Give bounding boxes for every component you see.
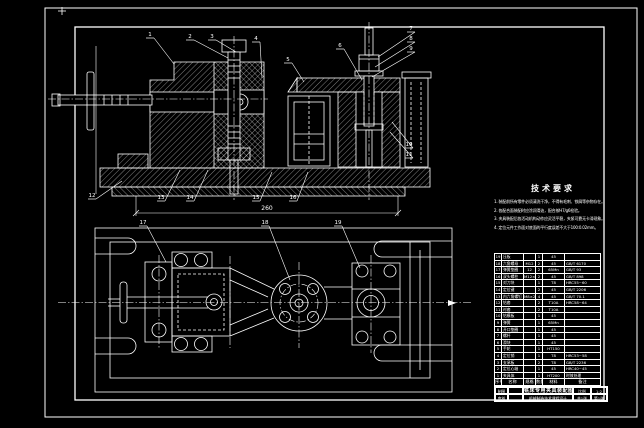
sheet-count: 共1张 (573, 394, 591, 401)
table-cell: 手轮 (502, 346, 524, 353)
table-cell: 1 (536, 326, 543, 333)
table-cell: T8 (543, 280, 565, 287)
slide-body (172, 268, 230, 336)
technical-requirements: 技术要求 1. 装配前所有零件必须清洗干净，不得有毛刺、铁屑等杂物存在。2. 各… (494, 183, 612, 232)
checked-label: 审核 (495, 394, 508, 401)
table-cell: 支承板 (502, 359, 524, 366)
balloon-number: 2 (188, 34, 192, 40)
table-cell: 45 (543, 293, 565, 300)
cad-drawing-canvas: 260 (0, 0, 644, 428)
table-cell: 8 (495, 326, 502, 333)
balloon-number: 11 (406, 152, 413, 158)
table-header-cell: 材料 (543, 379, 565, 386)
balloon-number: 1 (148, 32, 152, 38)
parts-table-grid: 19压板14518六角螺母M12245GB/T 617017弹簧垫圈12265M… (494, 253, 601, 386)
table-cell: 12 (495, 300, 502, 307)
table-cell: HT200 (543, 372, 565, 379)
balloon-number: 4 (254, 36, 258, 42)
base-plate-upper (100, 168, 430, 187)
table-cell: 2 (536, 260, 543, 267)
table-cell: HRC53~58 (565, 352, 601, 359)
table-header-cell: 数量 (536, 379, 543, 386)
table-cell: 6 (495, 339, 502, 346)
table-cell: GB/T 70.1 (565, 293, 601, 300)
table-cell: T10A (543, 300, 565, 307)
table-cell (524, 346, 536, 353)
top-plate (297, 78, 400, 92)
table-cell: M12 (524, 260, 536, 267)
table-cell: 15 (495, 280, 502, 287)
table-cell: 定位心轴 (502, 366, 524, 373)
table-cell: 45 (543, 313, 565, 320)
table-cell: 1 (536, 313, 543, 320)
table-row: 9弹簧165Mn (495, 319, 601, 326)
table-cell (565, 306, 601, 313)
table-cell: 1 (536, 333, 543, 340)
table-cell: HRC58~64 (565, 300, 601, 307)
table-row: 14定位键245GB/T 2206 (495, 286, 601, 293)
table-cell (565, 346, 601, 353)
table-cell (524, 280, 536, 287)
table-cell: 2 (536, 286, 543, 293)
table-cell: 14 (495, 286, 502, 293)
balloon-number: 14 (187, 195, 194, 201)
table-row: 1夹具体1HT200时效处理 (495, 372, 601, 379)
table-row: 11衬套2T10A (495, 306, 601, 313)
table-cell: 45 (543, 273, 565, 280)
table-row: 19压板145 (495, 254, 601, 261)
balloon-number: 17 (140, 220, 147, 226)
table-cell (565, 339, 601, 346)
balloon-number: 6 (338, 43, 342, 49)
table-cell: 1 (536, 319, 543, 326)
block-bolt-hole (384, 331, 396, 343)
technical-requirement-item: 2. 各配合面装配时应涂润滑油，配合按H7/g6检验。 (494, 207, 612, 216)
technical-requirements-list: 1. 装配前所有零件必须清洗干净，不得有毛刺、铁屑等杂物存在。2. 各配合面装配… (494, 198, 612, 232)
table-cell: 18 (495, 260, 502, 267)
block-bolt-hole (356, 331, 368, 343)
table-cell: 17 (495, 267, 502, 274)
table-cell (524, 319, 536, 326)
table-cell: 45 (543, 254, 565, 261)
table-cell: 对刀块 (502, 280, 524, 287)
flange-bolt-hole (308, 312, 319, 323)
technical-requirements-title: 技术要求 (494, 183, 612, 194)
parts-table: 19压板14518六角螺母M12245GB/T 617017弹簧垫圈12265M… (494, 253, 601, 386)
table-row: 6滑块145 (495, 339, 601, 346)
table-cell: 压板 (502, 254, 524, 261)
table-cell: GB/T 6170 (565, 260, 601, 267)
table-cell: 16 (495, 273, 502, 280)
mount-slot (95, 338, 136, 354)
table-row: 3支承板2T8GB/T 2236 (495, 359, 601, 366)
balloon-callout: 1 (146, 32, 174, 64)
flange-bolt-hole (308, 284, 319, 295)
table-cell: 65Mn (543, 267, 565, 274)
plan-view (95, 228, 456, 392)
table-cell: 2 (536, 300, 543, 307)
block-bolt-hole (356, 265, 368, 277)
table-row: 17弹簧垫圈12265MnGB/T 93 (495, 267, 601, 274)
drafter-name-cell (508, 387, 523, 394)
table-row: 13内六角螺钉M8×20445GB/T 70.1 (495, 293, 601, 300)
balloon-callout: 18 (261, 220, 290, 280)
table-cell: 开口垫圈 (502, 326, 524, 333)
table-cell: 1 (536, 372, 543, 379)
table-cell: 10 (495, 313, 502, 320)
flange-bolt-hole (280, 312, 291, 323)
table-outline (95, 228, 452, 392)
table-cell: 45 (543, 366, 565, 373)
table-header-cell: 序号 (495, 379, 502, 386)
technical-requirement-item: 1. 装配前所有零件必须清洗干净，不得有毛刺、铁屑等杂物存在。 (494, 198, 612, 207)
table-cell: 螺杆 (502, 333, 524, 340)
table-cell: 3 (495, 359, 502, 366)
table-cell: 夹具体 (502, 372, 524, 379)
balloon-callout: 19 (334, 220, 360, 268)
balloon-number: 13 (158, 195, 165, 201)
table-cell (565, 254, 601, 261)
table-cell: GB/T 2236 (565, 359, 601, 366)
drawn-label: 制图 (495, 387, 508, 394)
table-cell: 5 (495, 346, 502, 353)
table-cell: 1 (536, 366, 543, 373)
table-cell: 弹簧垫圈 (502, 267, 524, 274)
scale-label: 比例 (573, 387, 591, 394)
table-row: 4定位销1T8HRC53~58 (495, 352, 601, 359)
lead-screw (58, 95, 152, 105)
table-header-cell: 名称 (502, 379, 524, 386)
table-cell: 2 (536, 359, 543, 366)
table-cell: 1 (536, 254, 543, 261)
table-cell (524, 333, 536, 340)
table-cell: 12 (524, 267, 536, 274)
table-cell: 钻套 (502, 300, 524, 307)
table-row: 8开口垫圈145 (495, 326, 601, 333)
table-cell: 1 (536, 346, 543, 353)
table-cell (524, 372, 536, 379)
balloon-number: 8 (409, 36, 413, 42)
table-cell: 2 (536, 267, 543, 274)
table-row: 16双头螺柱M12×60245GB/T 898 (495, 273, 601, 280)
table-cell: 弹簧 (502, 319, 524, 326)
table-cell: 衬套 (502, 306, 524, 313)
table-cell: 45 (543, 286, 565, 293)
table-cell: T10A (543, 306, 565, 313)
table-cell: 9 (495, 319, 502, 326)
table-row: 5手轮1HT150 (495, 346, 601, 353)
balloon-number: 19 (335, 220, 342, 226)
ball-joint (206, 294, 222, 310)
table-cell: 1 (536, 352, 543, 359)
table-cell: HRC40~45 (565, 366, 601, 373)
mount-slot (374, 241, 452, 257)
technical-requirement-item: 4. 定位元件工作面对底面的平行度误差不大于100:0.02mm。 (494, 224, 612, 233)
bearing-block (352, 263, 400, 345)
table-cell: T8 (543, 352, 565, 359)
table-cell: HT150 (543, 346, 565, 353)
balloon-number: 16 (290, 195, 297, 201)
balloon-number: 9 (409, 46, 413, 52)
balloon-number: 12 (89, 193, 96, 199)
table-cell: 11 (495, 306, 502, 313)
table-cell: 65Mn (543, 319, 565, 326)
table-row: 10钻模板145 (495, 313, 601, 320)
table-cell: 2 (495, 366, 502, 373)
balloon-number: 3 (210, 34, 214, 40)
front-dimension: 260 (133, 196, 401, 216)
table-cell (524, 366, 536, 373)
table-cell (524, 352, 536, 359)
table-header-cell: 规格 (524, 379, 536, 386)
guide-column (145, 262, 172, 342)
table-cell: 滑块 (502, 339, 524, 346)
balloon-number: 15 (253, 195, 260, 201)
table-row: 2定位心轴145HRC40~45 (495, 366, 601, 373)
table-cell: 时效处理 (565, 372, 601, 379)
table-cell: HRC55~60 (565, 280, 601, 287)
technical-requirement-item: 3. 夹具装配后各活动机构动作应灵活平稳，夹紧可靠无卡滞现象。 (494, 215, 612, 224)
balloon-callout: 6 (336, 43, 362, 80)
balloon-number: 10 (406, 142, 413, 148)
table-cell: M12×60 (524, 273, 536, 280)
table-cell (565, 333, 601, 340)
table-cell: GB/T 2206 (565, 286, 601, 293)
page-number: 第1张 (591, 394, 607, 401)
table-cell (524, 300, 536, 307)
table-cell (524, 339, 536, 346)
mount-slot (374, 345, 452, 361)
balloon-callout: 17 (139, 220, 166, 262)
table-cell: 六角螺母 (502, 260, 524, 267)
table-cell: 定位销 (502, 352, 524, 359)
balloon-number: 5 (286, 57, 290, 63)
table-row: 7螺杆145 (495, 333, 601, 340)
table-cell: 钻模板 (502, 313, 524, 320)
table-cell: 4 (536, 293, 543, 300)
table-cell (524, 313, 536, 320)
table-cell: 13 (495, 293, 502, 300)
table-cell (524, 286, 536, 293)
table-cell: 7 (495, 333, 502, 340)
scale-value: 1:2 (591, 387, 607, 394)
dimension-text: 260 (261, 205, 273, 212)
table-cell: T8 (543, 359, 565, 366)
table-cell: GB/T 93 (565, 267, 601, 274)
table-cell: 4 (495, 352, 502, 359)
table-cell: 45 (543, 260, 565, 267)
table-row: 18六角螺母M12245GB/T 6170 (495, 260, 601, 267)
table-cell: 45 (543, 326, 565, 333)
table-cell (565, 319, 601, 326)
table-cell: 19 (495, 254, 502, 261)
table-cell (524, 359, 536, 366)
block-bolt-hole (384, 265, 396, 277)
table-cell: 2 (536, 306, 543, 313)
course-name: 机械制造技术课程设计 (523, 394, 573, 401)
table-row: 15对刀块1T8HRC55~60 (495, 280, 601, 287)
table-cell: 1 (495, 372, 502, 379)
table-cell: 1 (536, 339, 543, 346)
balloon-number: 18 (262, 220, 269, 226)
drawing-title: 铣床专用夹具装配图 (523, 387, 573, 394)
flange-bolt-hole (280, 284, 291, 295)
front-view (52, 28, 431, 196)
title-block: 制图 铣床专用夹具装配图 比例 1:2 审核 机械制造技术课程设计 共1张 第1… (494, 386, 608, 403)
table-row: 12钻套2T10AHRC58~64 (495, 300, 601, 307)
checker-name-cell (508, 394, 523, 401)
table-cell: GB/T 898 (565, 273, 601, 280)
table-cell (565, 313, 601, 320)
table-cell (524, 306, 536, 313)
mount-slot (95, 238, 136, 254)
table-cell: 定位键 (502, 286, 524, 293)
table-cell: 1 (536, 280, 543, 287)
table-header-cell: 备注 (565, 379, 601, 386)
table-header-row: 序号名称规格数量材料备注 (495, 379, 601, 386)
table-cell (524, 254, 536, 261)
table-cell: 双头螺柱 (502, 273, 524, 280)
table-cell: 内六角螺钉 (502, 293, 524, 300)
table-cell: M8×20 (524, 293, 536, 300)
table-cell (565, 326, 601, 333)
balloon-number: 7 (409, 26, 413, 32)
table-cell: 45 (543, 339, 565, 346)
table-cell: 2 (536, 273, 543, 280)
left-support (118, 154, 148, 168)
table-cell (524, 326, 536, 333)
table-cell: 45 (543, 333, 565, 340)
